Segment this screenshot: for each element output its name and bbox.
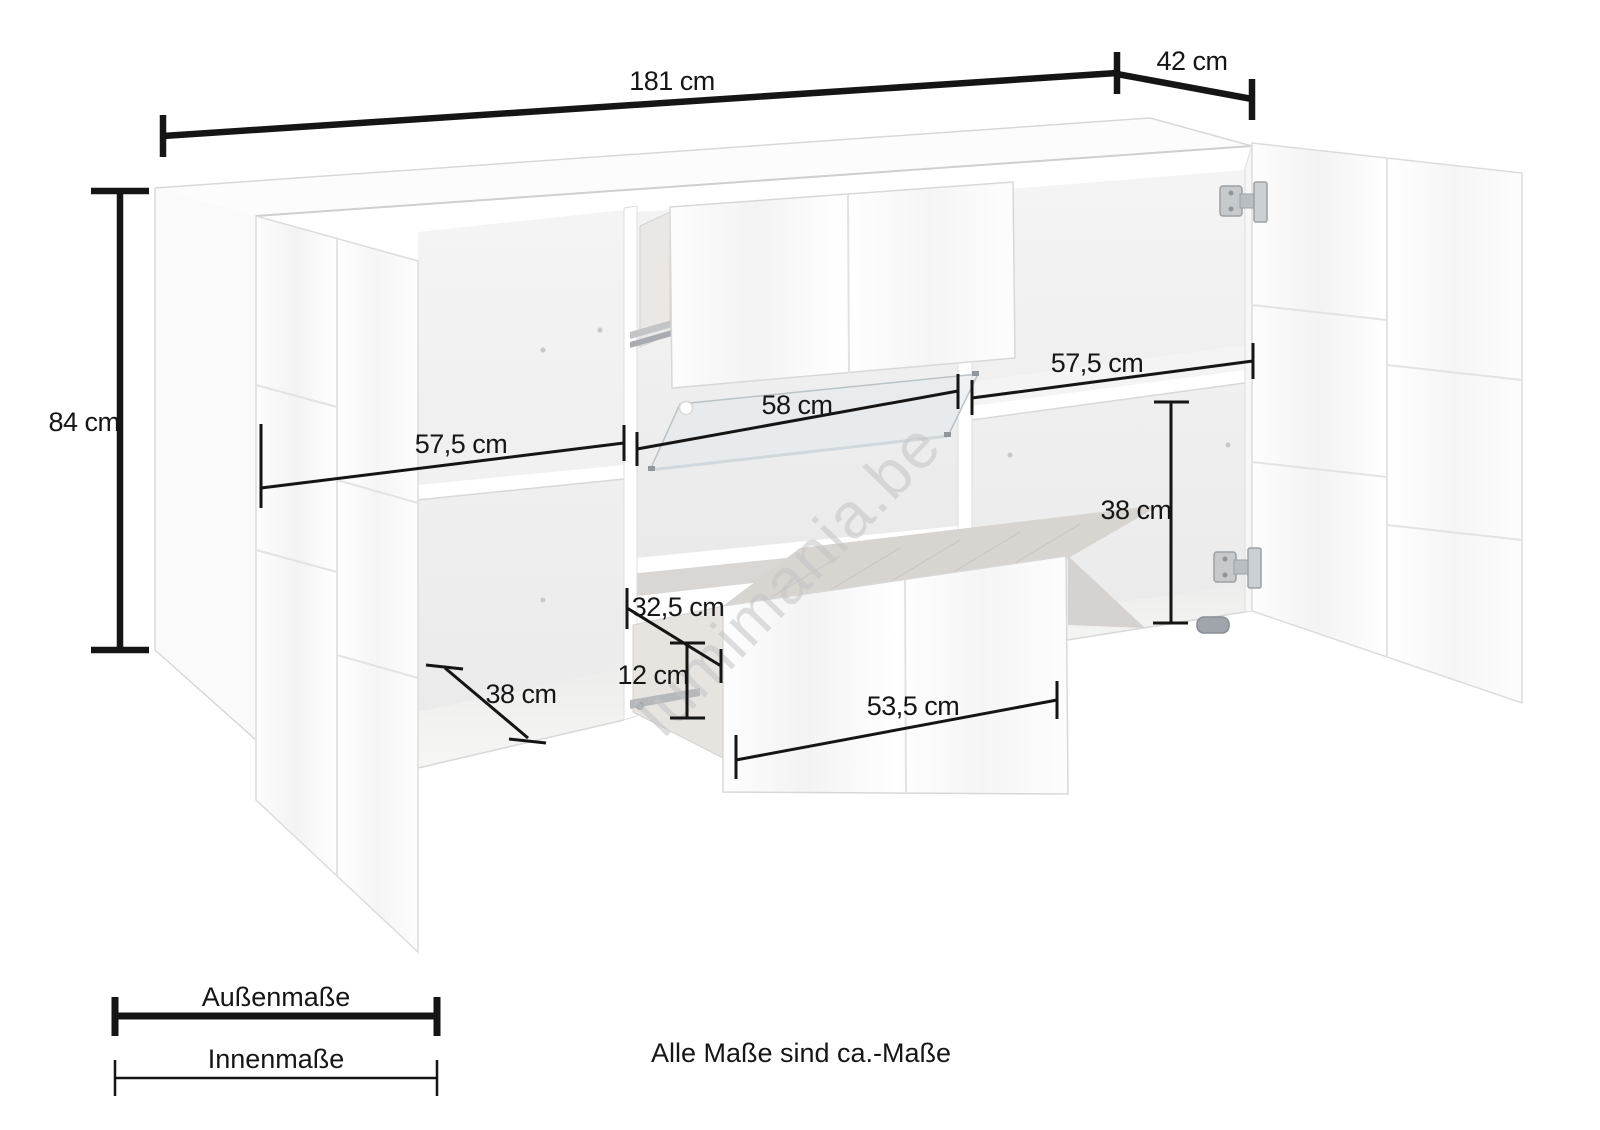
shelf-pin-hole: [1226, 443, 1231, 448]
dim-outer-height: 84 cm: [48, 191, 149, 650]
shelf-pin-hole: [541, 348, 546, 353]
dim-outer-depth-label: 42 cm: [1156, 46, 1227, 76]
glass-clamp: [648, 466, 655, 471]
upper-drawer-groove: [848, 194, 849, 373]
upper-drawer-front: [670, 182, 1015, 388]
dim-inner-right-height-label: 38 cm: [1100, 495, 1171, 525]
legend-inner: Innenmaße: [115, 1044, 437, 1096]
dim-inner-right-width-label: 57,5 cm: [1051, 348, 1144, 378]
dim-inner-left-width-label: 57,5 cm: [415, 429, 508, 459]
dim-inner-left-depth-label: 38 cm: [485, 679, 556, 709]
legend-outer-label: Außenmaße: [202, 982, 351, 1012]
legend-inner-label: Innenmaße: [208, 1044, 345, 1074]
dim-outer-depth: 42 cm: [1117, 46, 1252, 120]
shelf-pin-hole: [541, 598, 546, 603]
right-side-front-strip: [1245, 146, 1252, 612]
dim-drawer-front-width-label: 53,5 cm: [867, 691, 960, 721]
dimension-diagram: lumimania.be 181 cm 42 cm 84 cm 57,5 cm …: [0, 0, 1600, 1130]
led-spot: [680, 402, 693, 415]
shelf-pin-hole: [1008, 453, 1013, 458]
dim-inner-mid-width-label: 58 cm: [761, 390, 832, 420]
legend: Außenmaße Innenmaße Alle Maße sind ca.-M…: [115, 982, 951, 1096]
glass-clamp: [944, 432, 951, 437]
shelf-pin-hole: [598, 328, 603, 333]
measurements-note: Alle Maße sind ca.-Maße: [651, 1038, 951, 1068]
cabinet-foot: [1197, 617, 1229, 633]
lower-drawer-groove: [905, 580, 906, 793]
dim-drawer-depth-label: 32,5 cm: [632, 592, 725, 622]
legend-outer: Außenmaße: [115, 982, 437, 1036]
diagram-canvas: lumimania.be 181 cm 42 cm 84 cm 57,5 cm …: [0, 0, 1600, 1130]
dim-outer-height-label: 84 cm: [48, 407, 119, 437]
dim-drawer-height-label: 12 cm: [617, 660, 688, 690]
cabinet-left-side-panel: [155, 188, 256, 740]
glass-clamp: [972, 371, 979, 376]
right-door: [1214, 143, 1522, 703]
dim-outer-width-label: 181 cm: [629, 66, 715, 96]
upper-drawer: [630, 182, 1015, 388]
left-door: [256, 216, 418, 952]
